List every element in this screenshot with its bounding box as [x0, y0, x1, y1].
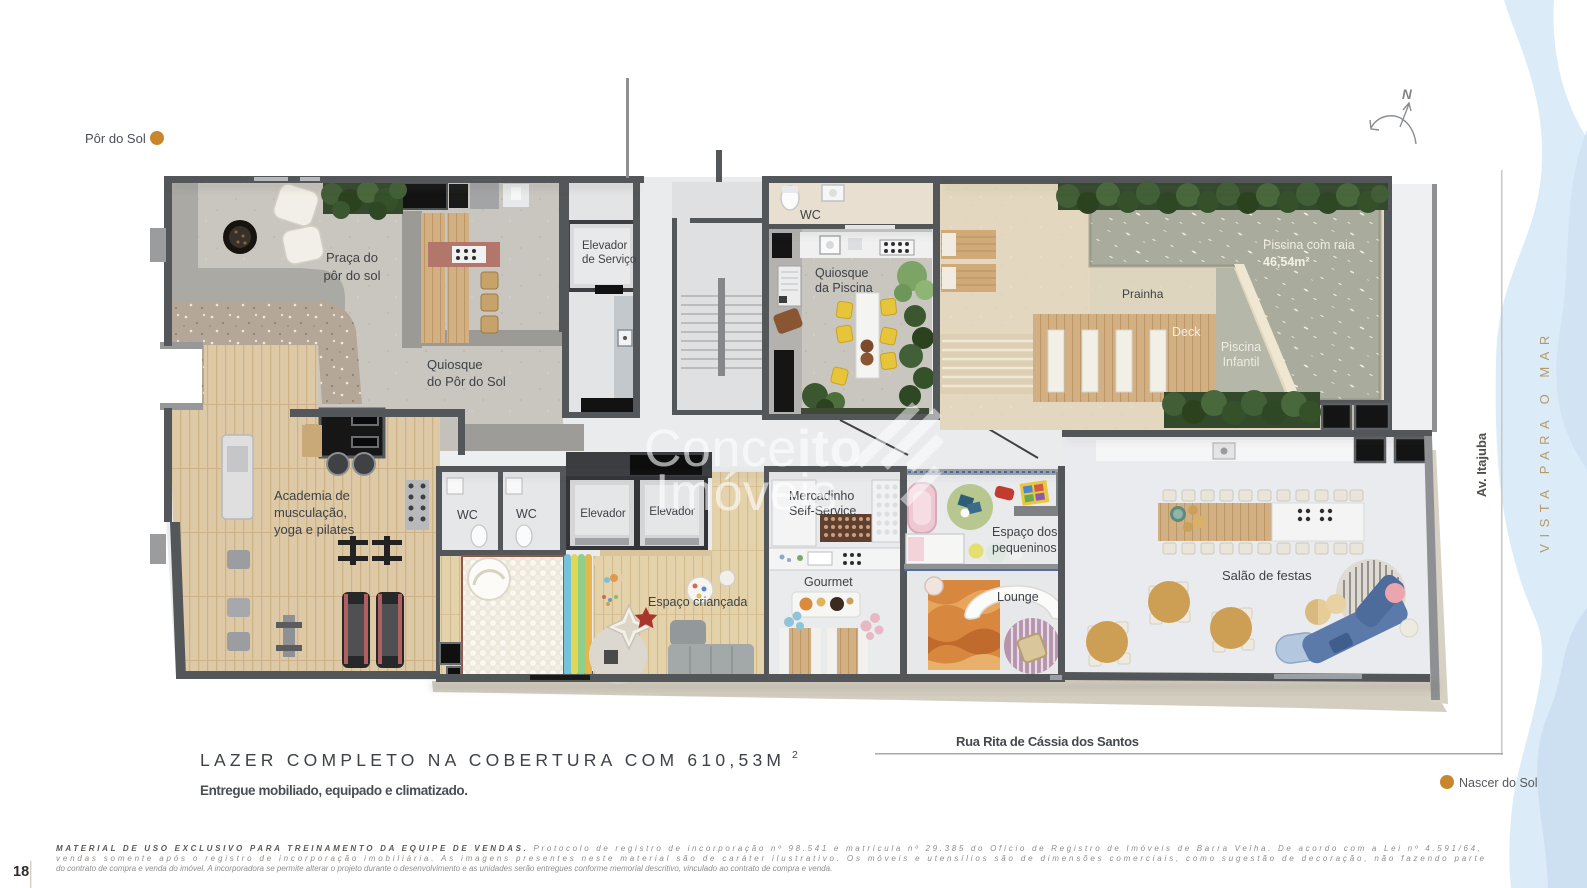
svg-text:Imóveis: Imóveis: [655, 464, 838, 522]
svg-text:18: 18: [13, 864, 29, 880]
svg-text:WC: WC: [800, 208, 821, 222]
svg-text:Espaço criançada: Espaço criançada: [648, 595, 747, 609]
svg-text:de Serviço: de Serviço: [582, 254, 636, 266]
svg-text:Pôr do Sol: Pôr do Sol: [85, 131, 146, 146]
svg-text:Gourmet: Gourmet: [804, 575, 853, 589]
svg-text:Elevador: Elevador: [582, 240, 628, 252]
svg-text:Quiosque: Quiosque: [815, 266, 869, 280]
svg-text:Infantil: Infantil: [1223, 355, 1260, 369]
svg-text:46,54m²: 46,54m²: [1263, 255, 1310, 269]
svg-text:WC: WC: [457, 508, 478, 522]
svg-text:2: 2: [792, 749, 798, 761]
svg-text:Salão de festas: Salão de festas: [1222, 568, 1312, 583]
svg-text:LAZER COMPLETO NA COBERTURA CO: LAZER COMPLETO NA COBERTURA COM 610,53M: [200, 750, 786, 770]
svg-text:Entregue mobiliado, equipado e: Entregue mobiliado, equipado e climatiza…: [200, 783, 468, 798]
svg-text:Av. Itajuba: Av. Itajuba: [1474, 432, 1489, 497]
svg-text:do contrato de compra e venda: do contrato de compra e venda do imóvel.…: [56, 864, 832, 873]
svg-text:Rua Rita de Cássia dos Santos: Rua Rita de Cássia dos Santos: [956, 734, 1139, 749]
svg-text:Deck: Deck: [1172, 325, 1201, 339]
svg-text:pequeninos: pequeninos: [992, 541, 1057, 555]
svg-text:Prainha: Prainha: [1122, 287, 1164, 301]
svg-text:Lounge: Lounge: [997, 590, 1039, 604]
svg-text:Praça do: Praça do: [326, 250, 378, 265]
svg-text:yoga e pilates: yoga e pilates: [274, 522, 355, 537]
svg-text:musculação,: musculação,: [274, 505, 347, 520]
svg-text:pôr do sol: pôr do sol: [323, 268, 380, 283]
svg-text:N: N: [1402, 87, 1412, 102]
svg-text:WC: WC: [516, 507, 537, 521]
svg-text:Academia de: Academia de: [274, 488, 350, 503]
svg-text:Quiosque: Quiosque: [427, 357, 483, 372]
svg-text:VISTA PARA O MAR: VISTA PARA O MAR: [1537, 329, 1552, 552]
svg-text:Piscina: Piscina: [1221, 340, 1261, 354]
svg-text:Nascer do Sol: Nascer do Sol: [1459, 776, 1538, 790]
svg-text:Elevador: Elevador: [580, 508, 626, 520]
svg-text:Piscina com raia: Piscina com raia: [1263, 238, 1355, 252]
svg-text:do Pôr do Sol: do Pôr do Sol: [427, 374, 506, 389]
svg-text:da Piscina: da Piscina: [815, 281, 873, 295]
svg-text:Espaço dos: Espaço dos: [992, 525, 1057, 539]
